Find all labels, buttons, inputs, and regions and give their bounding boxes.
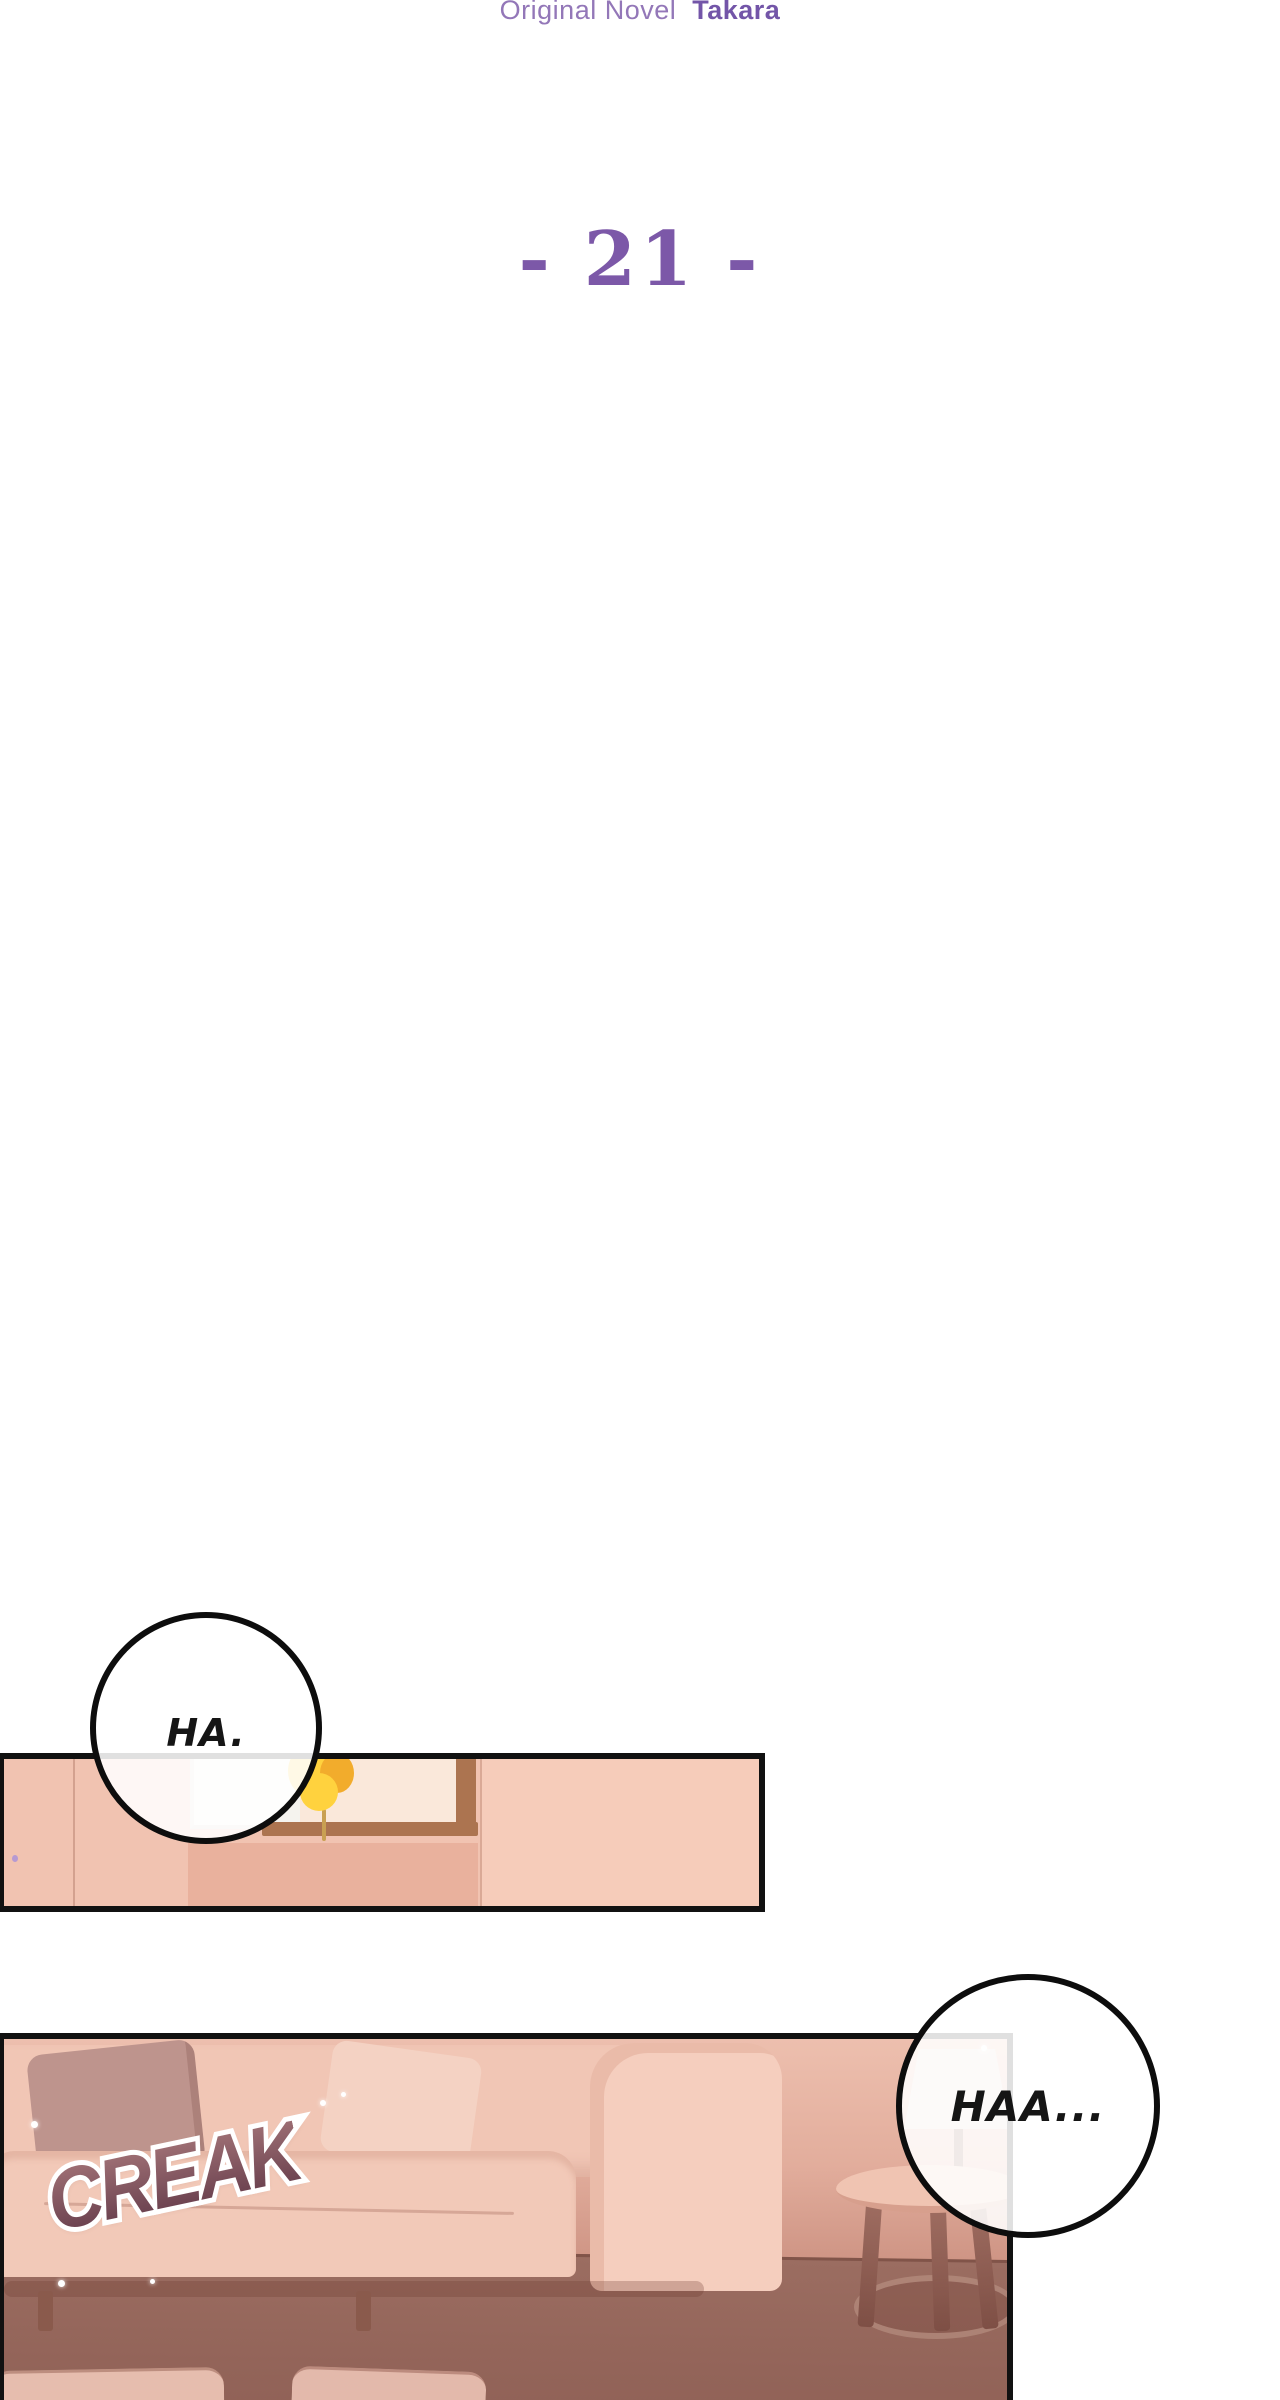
wall-seam-line [480, 1759, 482, 1906]
sparkle-dot [12, 1855, 18, 1862]
speech-bubble-haa: HAA... [896, 1974, 1160, 2238]
credit-author-name: Takara [692, 0, 780, 25]
speech-text-ha: HA. [166, 1711, 245, 1755]
wall-right-section [482, 1759, 759, 1906]
sofa-leg [356, 2291, 371, 2331]
sofa-armrest [590, 2043, 782, 2291]
sparkle-dot [341, 2092, 346, 2097]
floor-cushion [291, 2366, 486, 2400]
speech-text-haa: HAA... [951, 2082, 1106, 2131]
sofa-floor-shadow [4, 2281, 704, 2297]
sparkle-dot [320, 2100, 326, 2106]
picture-frame-bottom-bar [262, 1822, 478, 1836]
wall-seam-line [73, 1759, 75, 1906]
sofa-leg [38, 2291, 53, 2331]
sparkle-dot [150, 2279, 155, 2284]
credit-prefix: Original Novel [500, 0, 677, 25]
flower-stem [322, 1809, 326, 1841]
speech-bubble-ha: HA. [90, 1612, 322, 1844]
side-table-leg [930, 2201, 951, 2331]
floor-cushion [0, 2367, 224, 2400]
credit-line: Original Novel Takara [0, 0, 1280, 28]
sideboard-shadow [188, 1843, 478, 1906]
comic-page: Original Novel Takara - 21 - [0, 0, 1280, 2400]
chapter-number: - 21 - [0, 222, 1280, 297]
sparkle-dot [31, 2121, 38, 2128]
sparkle-dot [58, 2280, 65, 2287]
picture-frame-right-bar [456, 1759, 476, 1836]
